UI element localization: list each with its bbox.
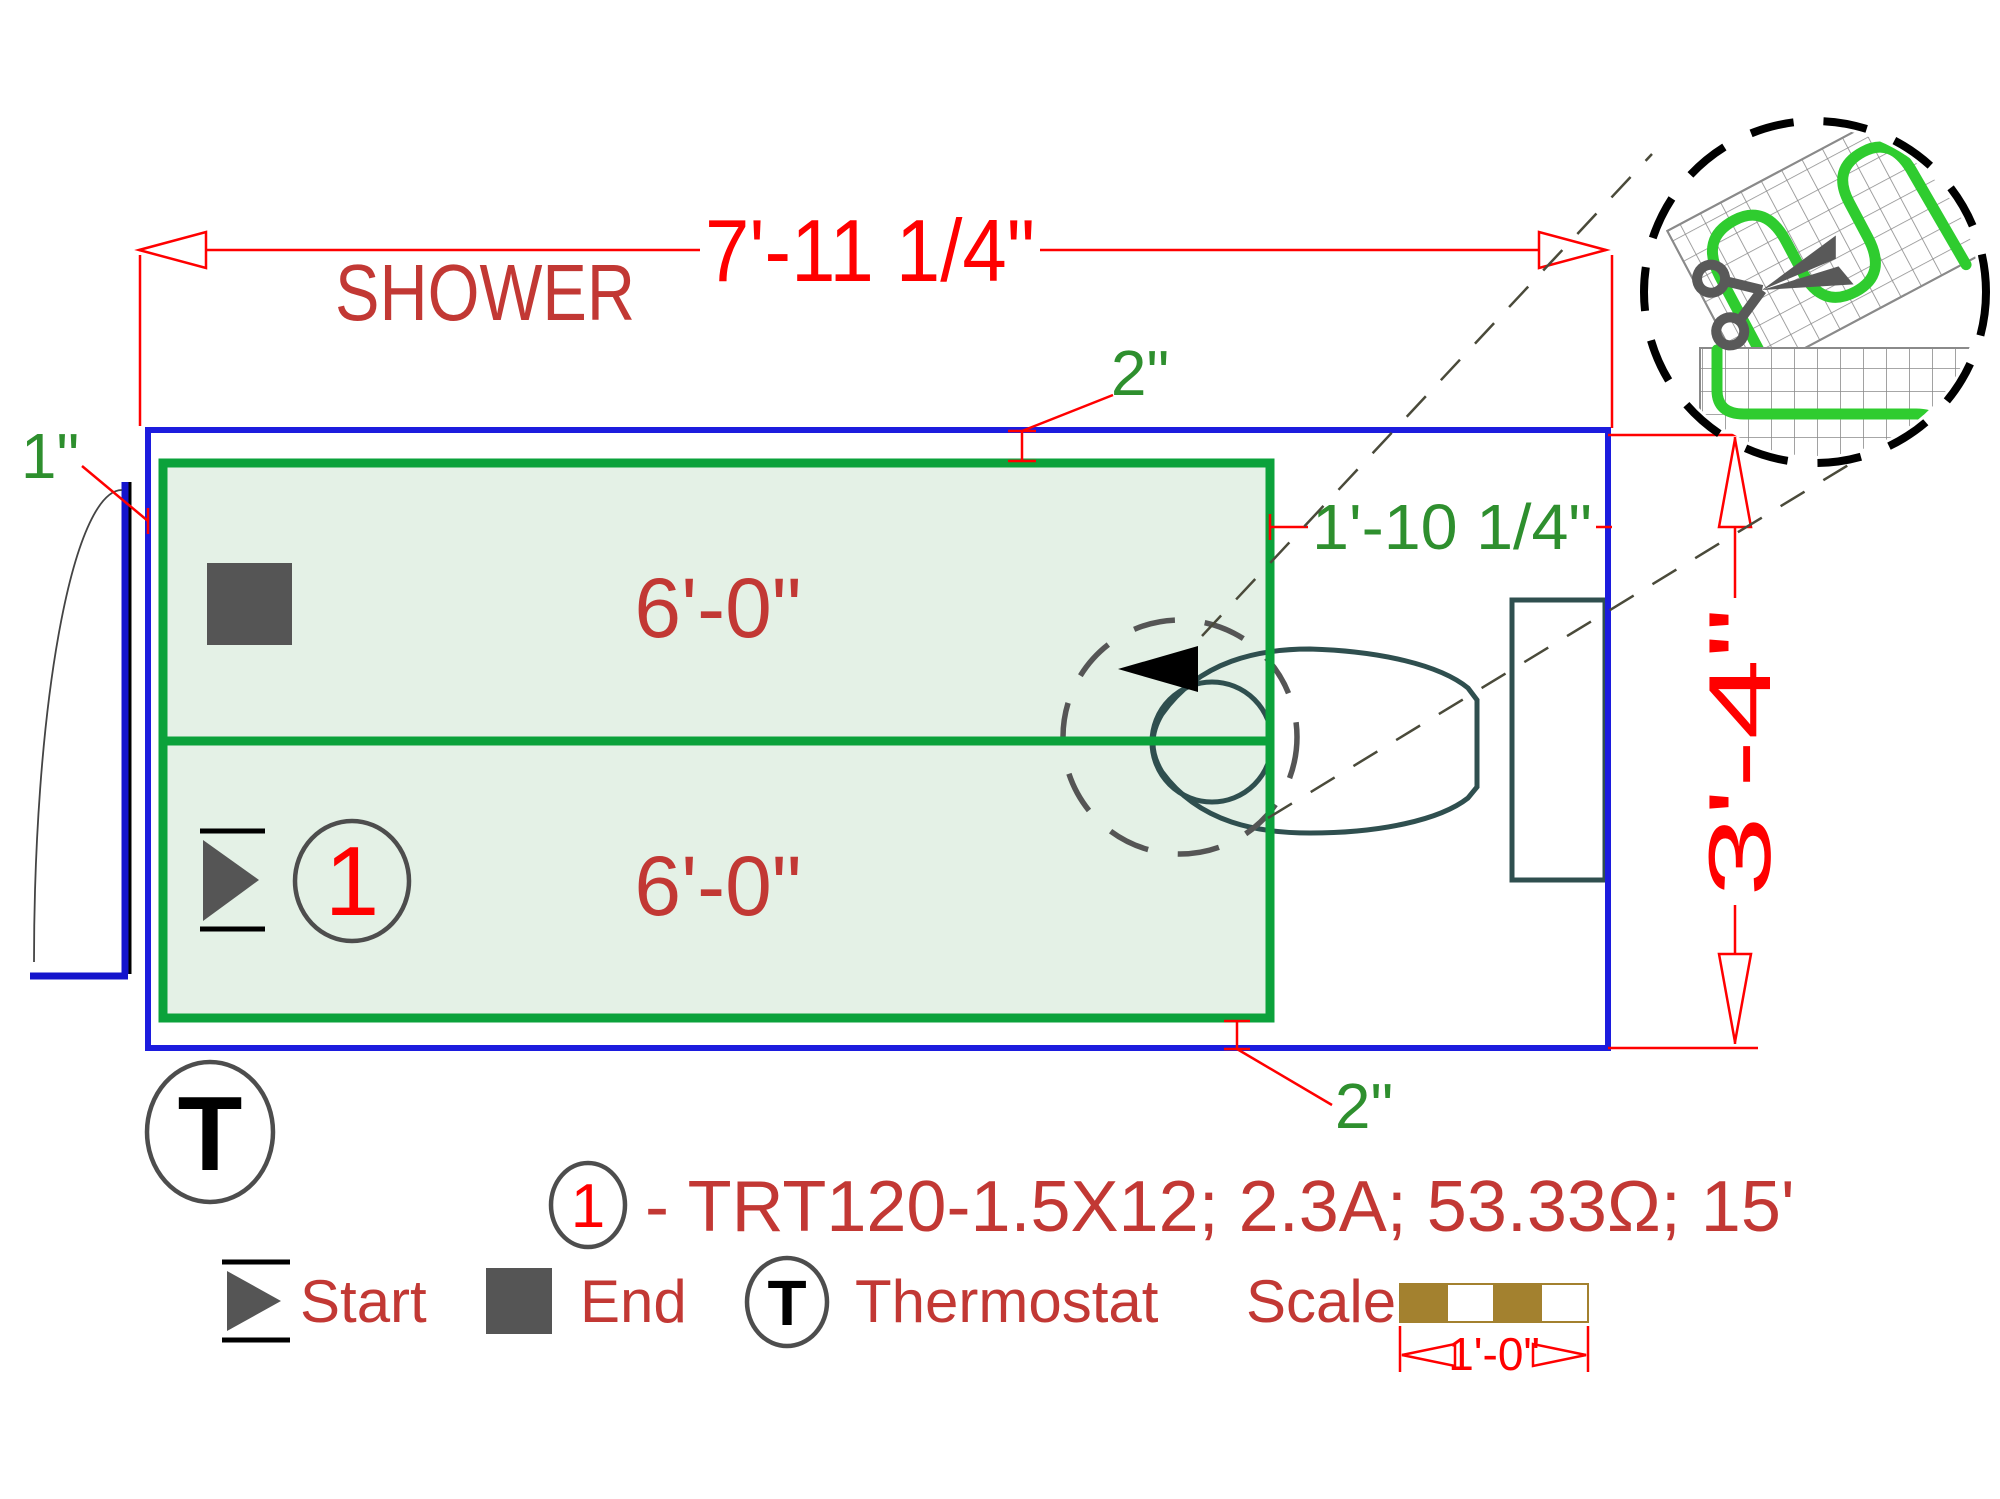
overall-width-value: 7'-11 1/4"	[705, 201, 1035, 300]
circuit-number: 1	[325, 826, 380, 936]
door-swing-arc	[34, 490, 122, 962]
row2-length-label: 6'-0"	[634, 839, 801, 933]
door	[30, 482, 130, 976]
legend: Start End T Thermostat Scale 1'-0"	[222, 1258, 1588, 1380]
scale-bar: 1'-0"	[1400, 1284, 1588, 1380]
top-gap-value: 2"	[1111, 337, 1169, 409]
toilet-tank	[1512, 600, 1605, 880]
page-title: SHOWER	[335, 248, 635, 337]
callout-number: 1	[571, 1172, 605, 1241]
dimension-bottom-gap: 2"	[1224, 1021, 1393, 1142]
thermostat-symbol: T	[147, 1062, 273, 1202]
circuit-callout: 1 - TRT120-1.5X12; 2.3A; 53.33Ω; 15'	[551, 1163, 1795, 1247]
dimension-top-gap: 2"	[1008, 337, 1169, 461]
legend-end-icon	[486, 1268, 552, 1334]
legend-thermostat-label: Thermostat	[855, 1268, 1159, 1335]
scale-label: Scale	[1246, 1268, 1396, 1335]
bottom-mat-mesh	[1700, 348, 1985, 462]
zoom-detail-content	[1667, 88, 2000, 462]
legend-start-icon	[222, 1262, 290, 1340]
overall-height-value: 3'-4"	[1690, 607, 1789, 897]
floor-plan-canvas: 1 6'-0" 6'-0" SHOWER 7'-11 1/4" 3'-4" 1"…	[0, 0, 2000, 1499]
right-gap-value: 1'-10 1/4"	[1312, 491, 1592, 563]
legend-thermostat-icon: T	[747, 1258, 827, 1346]
dimension-overall-height: 3'-4"	[1608, 435, 1789, 1048]
end-square-icon	[207, 563, 292, 645]
callout-spec-text: - TRT120-1.5X12; 2.3A; 53.33Ω; 15'	[645, 1167, 1795, 1247]
bottom-gap-value: 2"	[1335, 1070, 1393, 1142]
scale-value: 1'-0"	[1448, 1328, 1540, 1380]
legend-start-label: Start	[300, 1268, 427, 1335]
thermostat-letter: T	[178, 1075, 243, 1193]
left-gap-value: 1"	[21, 420, 79, 492]
dimension-right-gap: 1'-10 1/4"	[1270, 491, 1612, 563]
heated-floor-plan-drawing: 1 6'-0" 6'-0" SHOWER 7'-11 1/4" 3'-4" 1"…	[0, 0, 2000, 1499]
row1-length-label: 6'-0"	[634, 561, 801, 655]
legend-end-label: End	[580, 1268, 687, 1335]
legend-thermostat-letter: T	[767, 1267, 806, 1339]
